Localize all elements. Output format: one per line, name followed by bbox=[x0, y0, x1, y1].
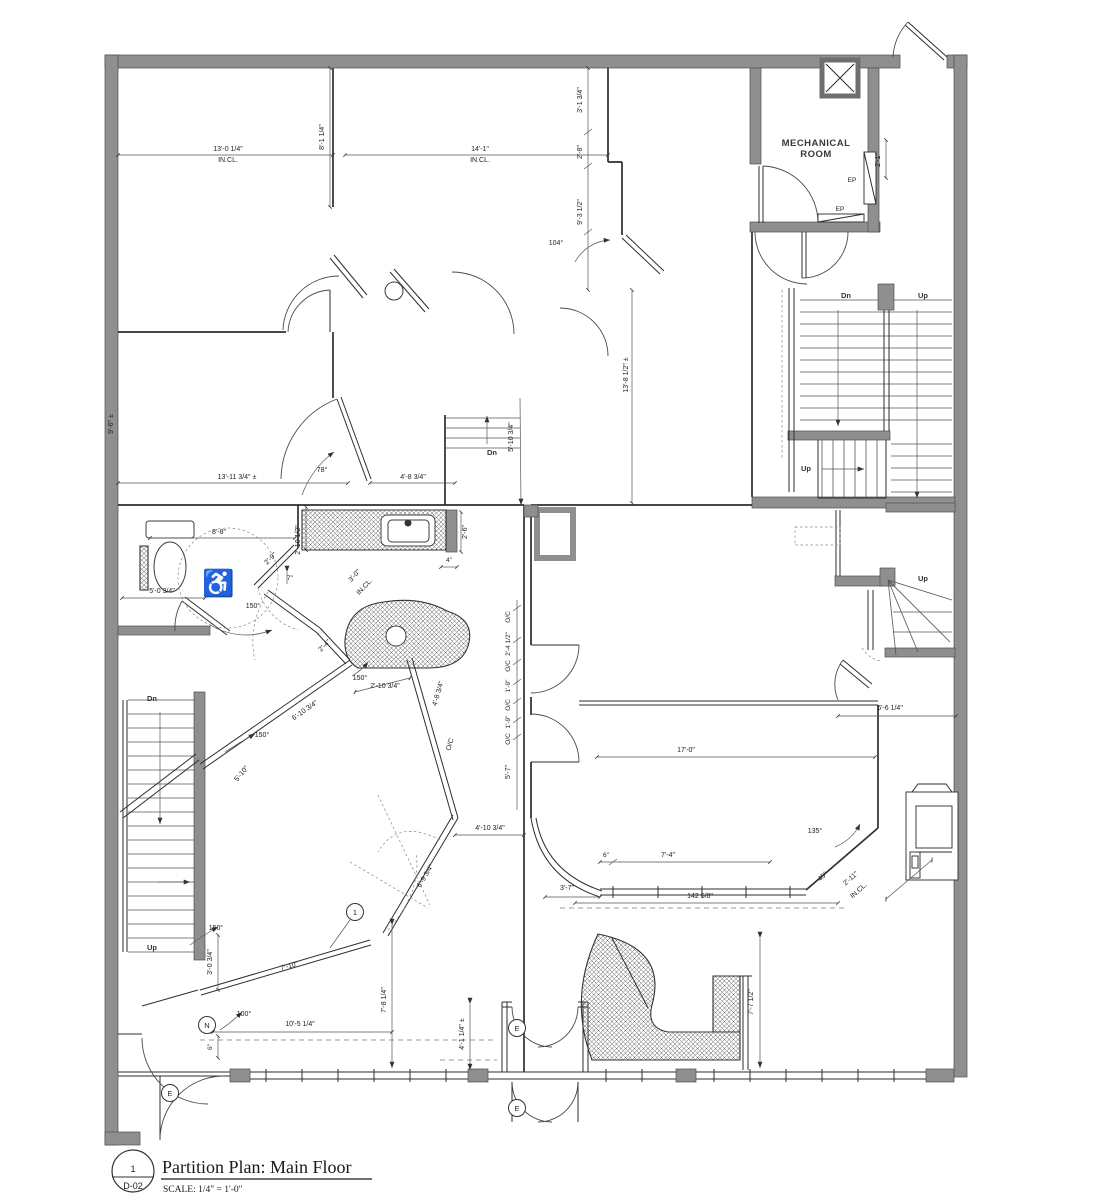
dim-2-11: 2'-11" bbox=[842, 870, 860, 887]
dim-17-0: 17'-0" bbox=[677, 747, 695, 754]
angle-100: 100° bbox=[237, 1010, 252, 1018]
angle-150-desk: 150° bbox=[353, 674, 368, 682]
lobby-desk-hatched bbox=[345, 600, 470, 668]
north-marker: N bbox=[204, 1021, 209, 1030]
plan-title: Partition Plan: Main Floor bbox=[162, 1157, 352, 1177]
sheet-number: D-02 bbox=[123, 1181, 143, 1191]
dim-6-10-3-4: 6'-10 3/4" bbox=[291, 699, 320, 722]
dim-5-0-3-4: 5'-0 3/4" bbox=[149, 588, 175, 595]
dim-5-7: 5'-7" bbox=[505, 765, 512, 779]
angle-135: 135° bbox=[808, 827, 823, 835]
dim-2-9: 2'-9" bbox=[264, 551, 279, 566]
entry-marker-3: E bbox=[514, 1104, 519, 1113]
dim-9-6: 9'-6" ± bbox=[108, 414, 115, 434]
dim-2-10-1-2: 2'-10 1/2" bbox=[295, 525, 302, 555]
dim-4in: 4" bbox=[446, 557, 453, 564]
toilet-bowl bbox=[154, 542, 186, 592]
dim-4-1-1-4: 4'-1 1/4" ± bbox=[459, 1018, 466, 1050]
oc-label: O/C bbox=[445, 738, 455, 752]
title-block: 1 D-02 Partition Plan: Main Floor SCALE:… bbox=[112, 1150, 372, 1195]
dim-3-1-3-4: 3'-1 3/4" bbox=[577, 87, 584, 113]
dim-5-10: 5'-10" bbox=[233, 765, 250, 784]
circled-markers: E E E N 1 bbox=[162, 904, 526, 1117]
dim-142-5-8: 142 5/8" bbox=[687, 893, 713, 900]
incl-label: IN.CL. bbox=[218, 157, 238, 164]
dim-6in: 6" bbox=[603, 852, 610, 859]
angle-150-restroom: 150° bbox=[246, 602, 261, 610]
incl-label: IN.CL. bbox=[356, 577, 375, 596]
stair-up-left: Up bbox=[147, 943, 157, 952]
stair-up-small: Up bbox=[801, 464, 811, 473]
entry-marker-1: E bbox=[167, 1089, 172, 1098]
floor-plan-svg: 13'-0 1/4" IN.CL. 14'-1" IN.CL. 8'-1 1/4… bbox=[0, 0, 1115, 1200]
dim-2-4-1-2: 2'-4 1/2" bbox=[505, 631, 512, 655]
dim-4-8-3-4-wall: 4'-8 3/4" bbox=[432, 680, 446, 707]
ep-label-1: EP bbox=[848, 177, 857, 184]
angle-150-bottom: 150° bbox=[209, 924, 224, 932]
keynote-marker: 1 bbox=[353, 908, 357, 917]
mechanical-room-label2: ROOM bbox=[800, 149, 832, 160]
angle-104: 104° bbox=[549, 239, 564, 247]
dim-14-1: 14'-1" bbox=[471, 146, 489, 153]
dim-3-7: 3'-7" bbox=[560, 885, 574, 892]
detail-number: 1 bbox=[130, 1164, 135, 1174]
stair-main-left bbox=[120, 700, 199, 952]
oc-chain: O/C bbox=[505, 733, 512, 745]
dim-13-8-1-2: 13'-8 1/2" ± bbox=[623, 357, 630, 392]
ep-label-2: EP bbox=[836, 206, 845, 213]
dim-7in: 7" bbox=[287, 575, 294, 582]
dim-9-3-1-2: 9'-3 1/2" bbox=[577, 199, 584, 225]
dim-6in-2: 6" bbox=[207, 1043, 214, 1050]
dim-5-10-3-4: 5'-10 3/4" bbox=[508, 422, 515, 452]
stair-small-right bbox=[818, 440, 886, 498]
dim-7-7-1-2: 7'-7 1/2" bbox=[748, 989, 755, 1015]
entry-marker-2: E bbox=[514, 1024, 519, 1033]
stair-up-label: Up bbox=[918, 291, 928, 300]
oc-chain: O/C bbox=[505, 611, 512, 623]
dim-2-8: 2'-8" bbox=[577, 145, 584, 159]
dim-8-1-1-4: 8'-1 1/4" bbox=[319, 124, 326, 150]
dim-13-11-3-4: 13'-11 3/4" ± bbox=[218, 474, 257, 481]
dim-7-8-1-4: 7'-8 1/4" bbox=[381, 987, 388, 1013]
accessible-icon: ♿ bbox=[202, 568, 234, 598]
stair-dn-center: Dn bbox=[487, 448, 497, 457]
incl-label: IN.CL. bbox=[849, 882, 868, 901]
dim-1-9: 1'-9" bbox=[505, 679, 512, 693]
toilet-tank bbox=[146, 521, 194, 538]
floor-plan-page: 13'-0 1/4" IN.CL. 14'-1" IN.CL. 8'-1 1/4… bbox=[0, 0, 1115, 1200]
dim-7-4: 7'-4" bbox=[661, 852, 675, 859]
dim-8-8: 8'-8" bbox=[212, 529, 226, 536]
stair-dn-left: Dn bbox=[147, 694, 157, 703]
dim-1-9: 1'-9" bbox=[505, 715, 512, 729]
mechanical-room-label: MECHANICAL bbox=[782, 138, 851, 149]
center-shaft bbox=[537, 510, 573, 558]
dim-2-4: 2'-4" bbox=[318, 638, 333, 653]
doors bbox=[142, 22, 947, 1140]
oc-chain: O/C bbox=[505, 660, 512, 672]
oc-chain: O/C bbox=[505, 699, 512, 711]
dim-13-0-1-4: 13'-0 1/4" bbox=[213, 146, 243, 153]
dim-6-9-3-4: 6'-9 3/4" bbox=[416, 863, 435, 889]
stair-up-winder: Up bbox=[918, 574, 928, 583]
stair-dn-label: Dn bbox=[841, 291, 851, 300]
angle-150-lobby: 150° bbox=[255, 731, 270, 739]
dim-7-10: 7'-10" bbox=[280, 961, 300, 973]
equipment-unit bbox=[906, 784, 958, 880]
dim-2-6: 2'-6" bbox=[462, 525, 469, 539]
dim-10-5-1-4: 10'-5 1/4" bbox=[285, 1021, 315, 1028]
scale-note: SCALE: 1/4" = 1'-0" bbox=[163, 1185, 243, 1195]
angle-78: 78° bbox=[317, 466, 328, 474]
dim-2-1: 2'-1" bbox=[875, 153, 882, 167]
incl-label: IN.CL. bbox=[470, 157, 490, 164]
storefront bbox=[118, 1069, 954, 1082]
dim-6-6-1-4: 6'-6 1/4" bbox=[877, 705, 903, 712]
dim-4-10-3-4: 4'-10 3/4" bbox=[475, 825, 505, 832]
dim-3-0: 3'-0" bbox=[348, 568, 363, 583]
dim-4-8-3-4: 4'-8 3/4" bbox=[400, 474, 426, 481]
dim-3-0-3-4: 3'-0 3/4" bbox=[207, 949, 214, 975]
dim-2-10-3-4: 2'-10 3/4" bbox=[370, 683, 400, 690]
grab-bar bbox=[140, 546, 148, 590]
